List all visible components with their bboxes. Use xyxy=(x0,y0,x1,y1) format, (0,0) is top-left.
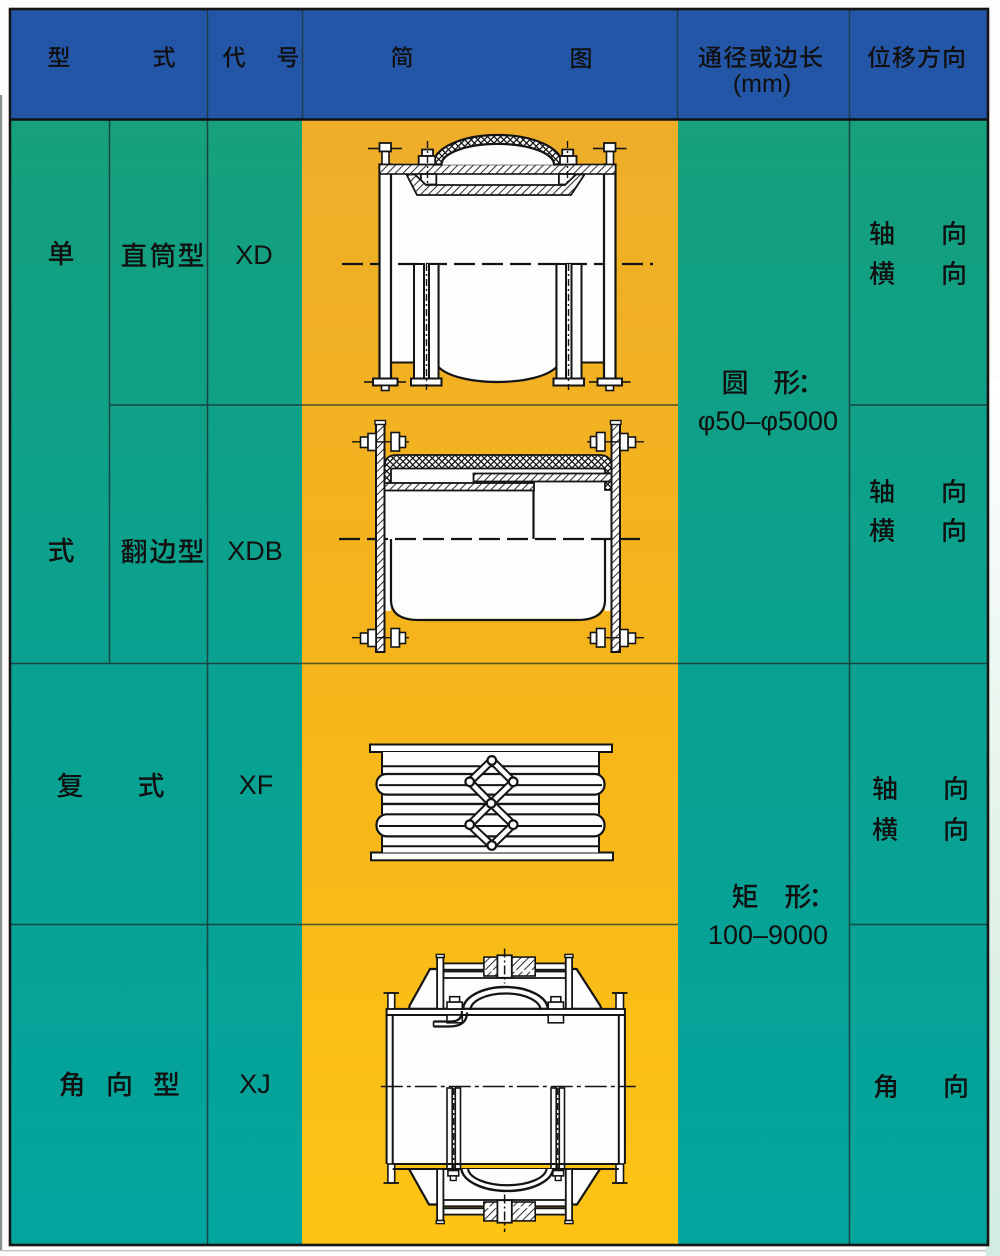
svg-text:100–9000: 100–9000 xyxy=(708,920,828,950)
svg-text:XDB: XDB xyxy=(227,536,283,566)
svg-text:XF: XF xyxy=(239,770,274,800)
svg-text:φ50–φ5000: φ50–φ5000 xyxy=(698,406,838,436)
svg-text:XD: XD xyxy=(235,240,273,270)
svg-text:(mm): (mm) xyxy=(733,70,791,98)
svg-text:XJ: XJ xyxy=(239,1069,271,1099)
